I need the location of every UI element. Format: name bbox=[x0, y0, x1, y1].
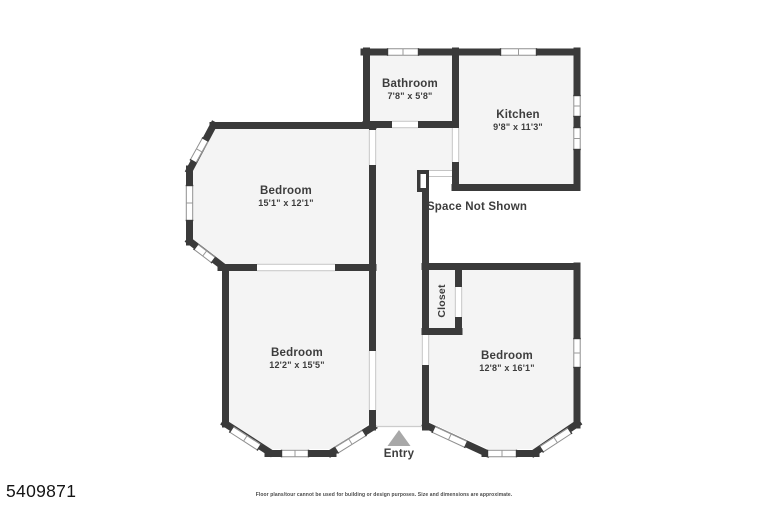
bedroom1-floor bbox=[189, 128, 369, 264]
floorplan-drawing bbox=[0, 0, 768, 512]
bedroom2-floor bbox=[229, 270, 369, 449]
kitchen-floor bbox=[455, 51, 577, 187]
floor-fills bbox=[189, 51, 577, 449]
disclaimer-text: Floor plans/tour cannot be used for buil… bbox=[0, 492, 768, 498]
entry-direction-icon bbox=[388, 430, 411, 446]
floorplan-page: Bathroom 7'8" x 5'8" Kitchen 9'8" x 11'3… bbox=[0, 0, 768, 512]
space-not-shown-label: Space Not Shown bbox=[427, 201, 527, 213]
bathroom-floor bbox=[366, 51, 455, 124]
bedroom3-floor bbox=[429, 270, 574, 449]
entry-label: Entry bbox=[384, 448, 414, 460]
wall-stub bbox=[417, 170, 429, 192]
